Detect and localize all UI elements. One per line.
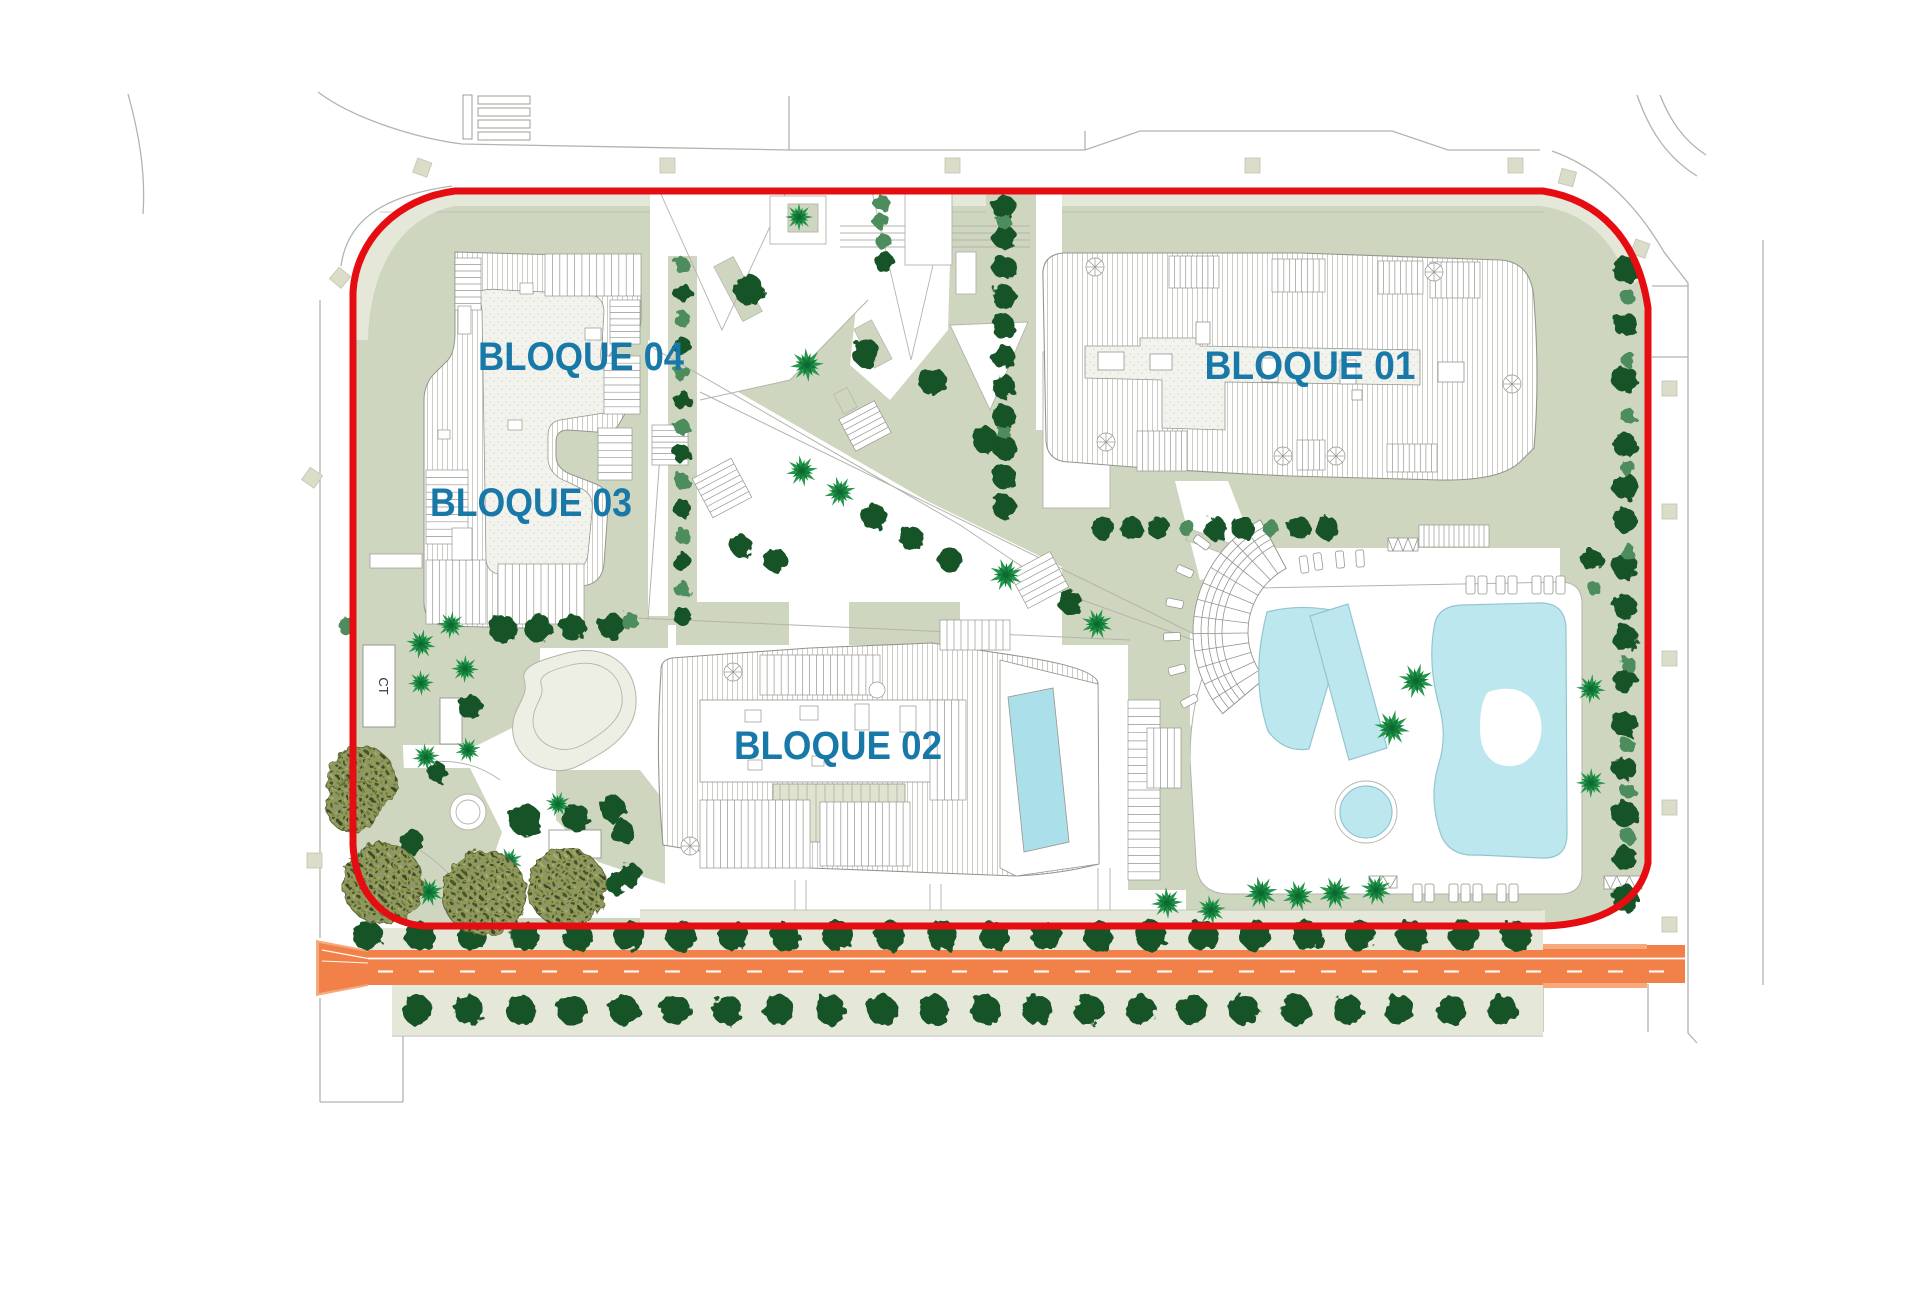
svg-text:BLOQUE 03: BLOQUE 03: [430, 481, 632, 525]
svg-text:CT: CT: [376, 677, 391, 694]
svg-text:BLOQUE 02: BLOQUE 02: [734, 724, 942, 768]
svg-text:BLOQUE 04: BLOQUE 04: [478, 335, 685, 379]
svg-text:BLOQUE 01: BLOQUE 01: [1205, 344, 1416, 388]
